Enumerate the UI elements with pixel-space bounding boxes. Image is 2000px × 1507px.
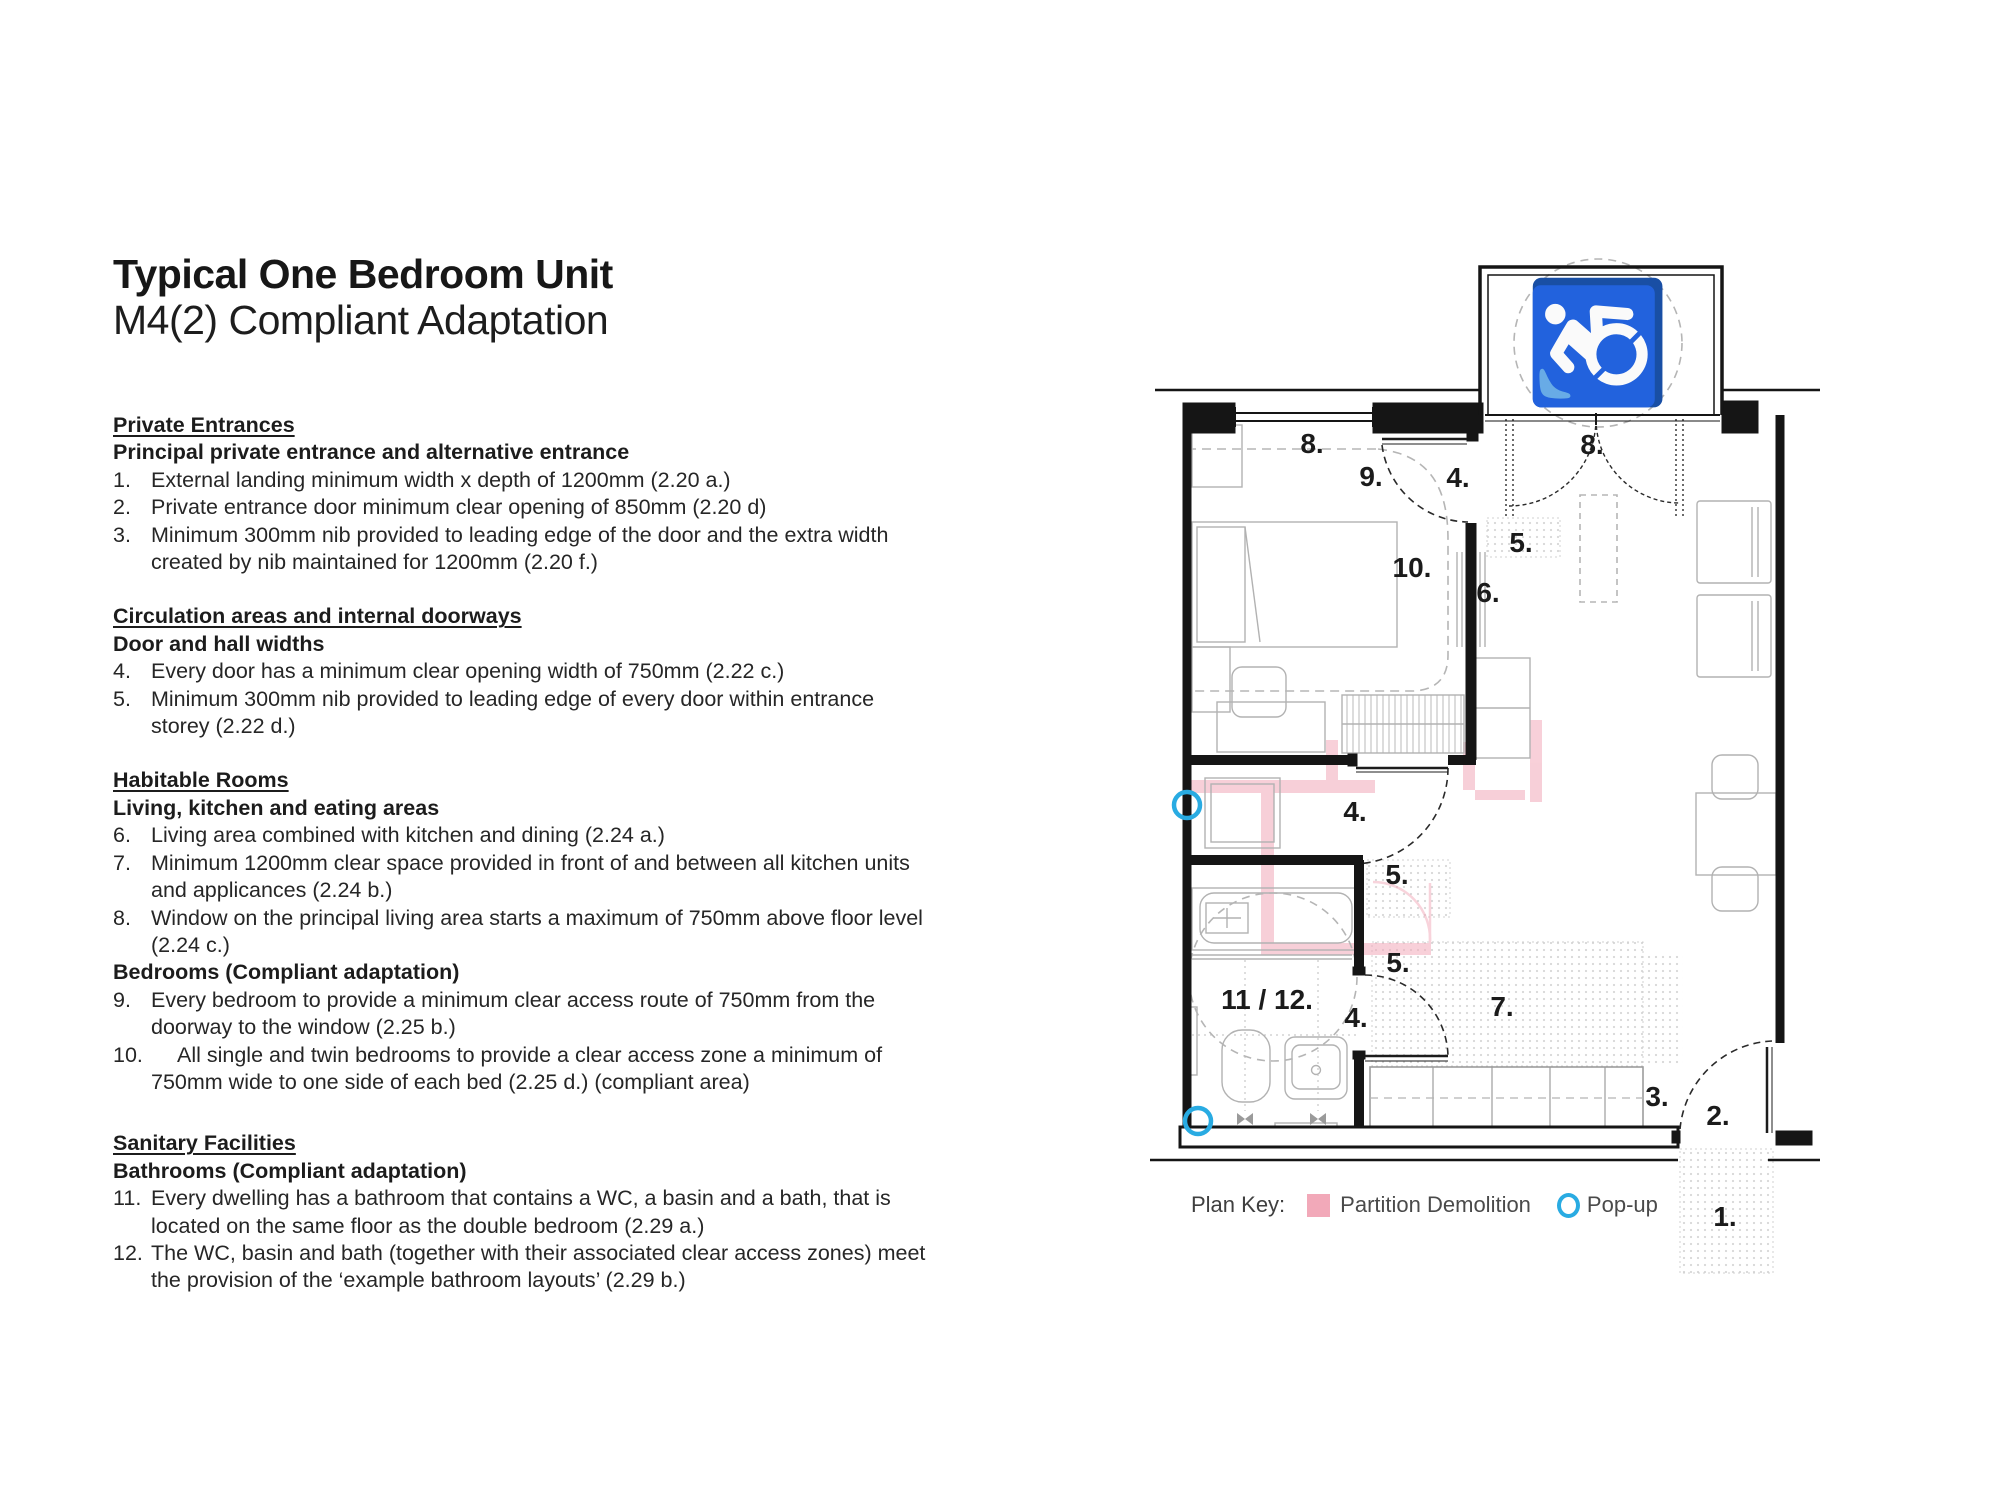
document-page: Typical One Bedroom Unit M4(2) Compliant…	[0, 0, 2000, 1507]
spec-item: 6.Living area combined with kitchen and …	[113, 822, 928, 849]
callout-label: 8.	[1580, 429, 1603, 460]
title-line-1: Typical One Bedroom Unit	[113, 252, 613, 298]
section-subheading-bedrooms: Bedrooms (Compliant adaptation)	[113, 959, 928, 986]
section-subheading: Principal private entrance and alternati…	[113, 439, 928, 466]
callout-label: 4.	[1344, 1002, 1367, 1033]
wall-pier	[1722, 401, 1758, 433]
callout-label: 2.	[1706, 1100, 1729, 1131]
callout-label: 3.	[1645, 1081, 1668, 1112]
bed	[1192, 522, 1397, 647]
desk-chair	[1232, 667, 1286, 717]
section-subheading: Bathrooms (Compliant adaptation)	[113, 1158, 928, 1185]
kitchen-counter	[1370, 1067, 1643, 1128]
door-nib	[1348, 754, 1357, 766]
popup-circle-icon	[1557, 1193, 1580, 1218]
title-line-2: M4(2) Compliant Adaptation	[113, 298, 613, 344]
section-subheading: Living, kitchen and eating areas	[113, 795, 928, 822]
bedroom-window	[1235, 407, 1373, 427]
callout-label: 7.	[1490, 991, 1513, 1022]
armchair	[1697, 595, 1771, 677]
door-nib	[1353, 1051, 1365, 1059]
demolition-bar	[1261, 793, 1274, 945]
callout-label: 9.	[1359, 461, 1382, 492]
section-private-entrances: Private Entrances Principal private entr…	[113, 412, 928, 576]
section-heading: Sanitary Facilities	[113, 1130, 928, 1157]
spec-list: 1.External landing minimum width x depth…	[113, 467, 928, 577]
section-circulation: Circulation areas and internal doorways …	[113, 603, 928, 740]
popup-label: Pop-up	[1587, 1192, 1658, 1218]
callout-label: 5.	[1509, 527, 1532, 558]
dining-chair	[1712, 867, 1758, 911]
callout-label: 5.	[1385, 859, 1408, 890]
plan-key-label: Plan Key:	[1191, 1192, 1285, 1218]
demolition-bar	[1530, 720, 1542, 802]
spec-item: 7.Minimum 1200mm clear space provided in…	[113, 850, 928, 905]
bottom-wall	[1180, 1127, 1678, 1147]
clear-zone-ghost	[1580, 495, 1617, 602]
wc	[1222, 1030, 1270, 1102]
callout-label: 1.	[1713, 1201, 1736, 1232]
vestibule-door-swing	[1596, 419, 1680, 503]
spec-item: 11.Every dwelling has a bathroom that co…	[113, 1185, 928, 1240]
wheelchair-icon: ♿	[1531, 270, 1664, 417]
spec-item: 4.Every door has a minimum clear opening…	[113, 658, 928, 685]
spec-item: 5.Minimum 300mm nib provided to leading …	[113, 686, 928, 741]
spec-list: 11.Every dwelling has a bathroom that co…	[113, 1185, 928, 1295]
callout-label: 10.	[1393, 552, 1432, 583]
callout-label: 4.	[1343, 796, 1366, 827]
partition-demolition-label: Partition Demolition	[1340, 1192, 1531, 1218]
section-subheading: Door and hall widths	[113, 631, 928, 658]
section-heading: Circulation areas and internal doorways	[113, 603, 928, 630]
spec-list: 9.Every bedroom to provide a minimum cle…	[113, 987, 928, 1097]
demolition-bar	[1475, 790, 1525, 800]
entrance-clear-zone	[1643, 955, 1683, 1066]
basin-drain	[1312, 1066, 1321, 1075]
callout-label: 5.	[1386, 947, 1409, 978]
door-nib	[1467, 425, 1478, 441]
spec-item: 10.All single and twin bedrooms to provi…	[113, 1042, 928, 1097]
section-heading: Habitable Rooms	[113, 767, 928, 794]
section-sanitary-facilities: Sanitary Facilities Bathrooms (Compliant…	[113, 1130, 928, 1294]
basin-bowl	[1292, 1045, 1340, 1089]
bed-fold-line	[1245, 527, 1260, 642]
page-title: Typical One Bedroom Unit M4(2) Compliant…	[113, 252, 613, 344]
callout-label: 8.	[1300, 428, 1323, 459]
spec-item: 9.Every bedroom to provide a minimum cle…	[113, 987, 928, 1042]
bed-pillow	[1197, 527, 1245, 642]
plan-key: Plan Key: Partition Demolition Pop-up	[1191, 1192, 1684, 1218]
dining-table	[1696, 793, 1776, 875]
callout-label: 6.	[1476, 577, 1499, 608]
callout-label: 4.	[1446, 462, 1469, 493]
counter-run	[1370, 1067, 1643, 1128]
section-heading: Private Entrances	[113, 412, 928, 439]
spec-item: 3.Minimum 300mm nib provided to leading …	[113, 522, 928, 577]
floor-plan: ♿	[1080, 255, 1840, 1275]
spec-item: 1.External landing minimum width x depth…	[113, 467, 928, 494]
door-nib	[1353, 967, 1365, 975]
spec-item: 2.Private entrance door minimum clear op…	[113, 494, 928, 521]
callout-label: 11 / 12.	[1221, 984, 1313, 1015]
bedside-unit	[1192, 425, 1242, 487]
valve-icon	[1237, 1113, 1245, 1125]
spec-list: 4.Every door has a minimum clear opening…	[113, 658, 928, 740]
valve-icon	[1245, 1113, 1253, 1125]
spec-item: 8.Window on the principal living area st…	[113, 905, 928, 960]
corner-wall-stub	[1776, 1131, 1812, 1145]
demolition-bar	[1183, 780, 1375, 793]
specification-text: Private Entrances Principal private entr…	[113, 412, 928, 1322]
door-hinge-nib	[1672, 1131, 1680, 1143]
partition-demolition-swatch-icon	[1307, 1194, 1330, 1217]
spec-item: 12.The WC, basin and bath (together with…	[113, 1240, 928, 1295]
armchair	[1697, 501, 1771, 583]
desk	[1217, 702, 1325, 752]
spec-list: 6.Living area combined with kitchen and …	[113, 822, 928, 959]
section-habitable-rooms: Habitable Rooms Living, kitchen and eati…	[113, 767, 928, 1096]
